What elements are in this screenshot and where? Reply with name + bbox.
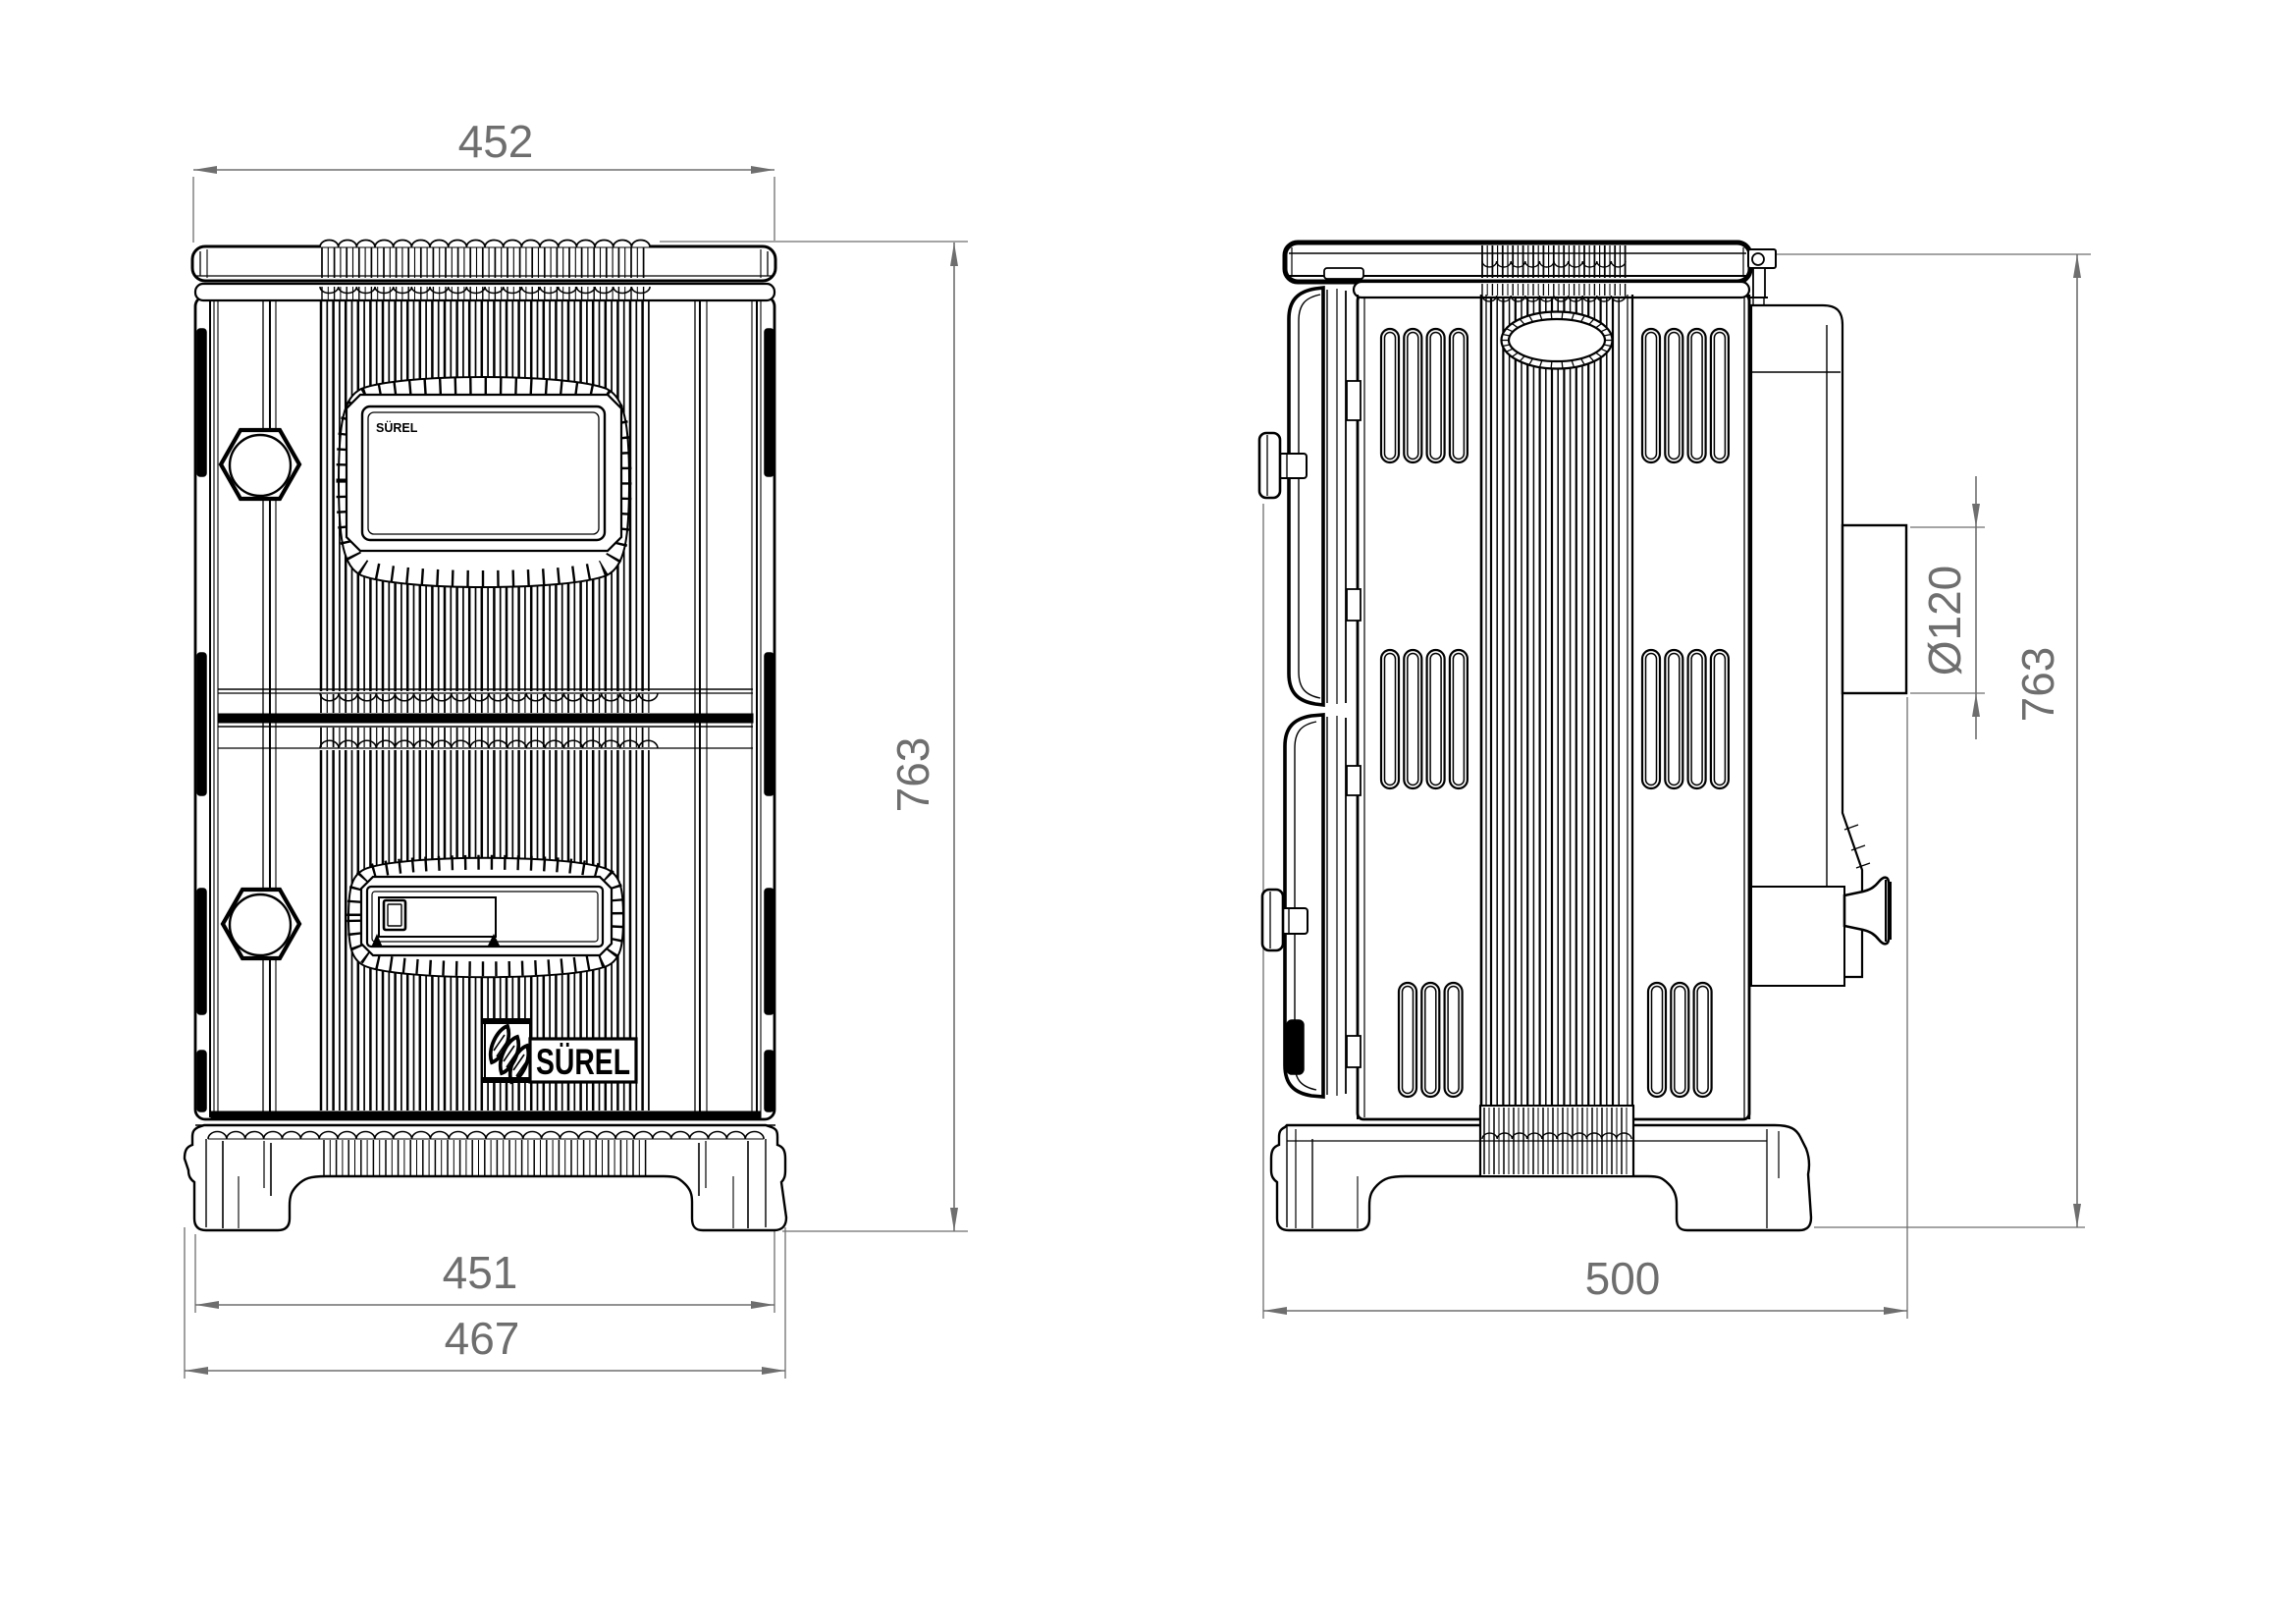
- svg-text:Ø120: Ø120: [1919, 566, 1970, 677]
- svg-text:451: 451: [443, 1247, 518, 1298]
- svg-text:467: 467: [445, 1313, 520, 1364]
- svg-text:763: 763: [887, 737, 938, 813]
- svg-text:SÜREL: SÜREL: [536, 1042, 630, 1082]
- svg-text:500: 500: [1585, 1253, 1661, 1304]
- svg-text:452: 452: [458, 116, 534, 167]
- svg-text:763: 763: [2012, 647, 2063, 723]
- svg-text:SÜREL: SÜREL: [376, 420, 418, 435]
